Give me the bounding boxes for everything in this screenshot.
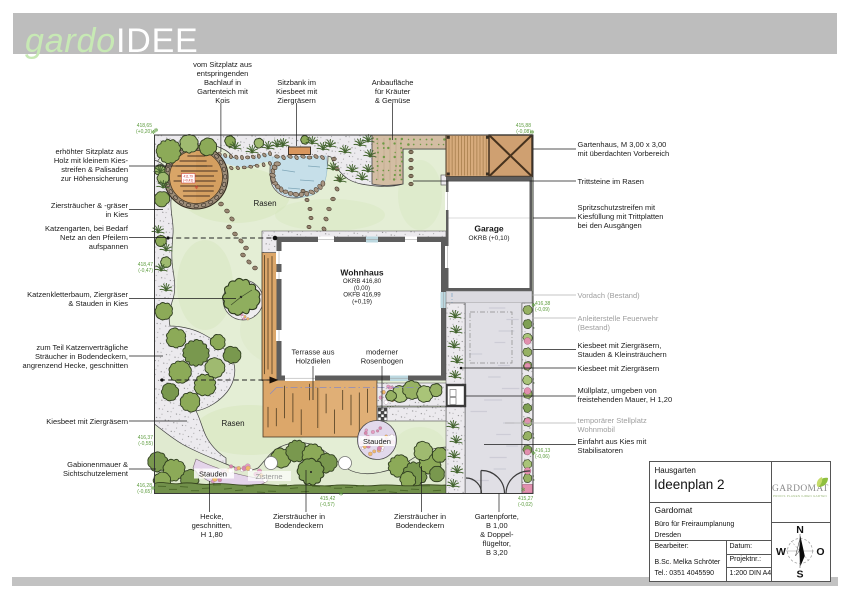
svg-text:(+0,43): (+0,43) xyxy=(183,179,193,183)
svg-text:✻: ✻ xyxy=(531,450,536,457)
svg-text:Rasen: Rasen xyxy=(221,419,244,428)
svg-text:(+0,20): (+0,20) xyxy=(136,129,152,135)
svg-text:Stauden: Stauden xyxy=(363,437,391,446)
svg-text:Wohnhaus: Wohnhaus xyxy=(340,268,384,278)
svg-text:✻: ✻ xyxy=(531,302,536,309)
svg-text:OKRB (+0,10): OKRB (+0,10) xyxy=(468,235,509,242)
svg-text:✻: ✻ xyxy=(194,185,198,191)
svg-text:✻: ✻ xyxy=(530,129,535,136)
svg-text:✻: ✻ xyxy=(154,127,159,134)
svg-text:(+0,19): (+0,19) xyxy=(352,298,372,305)
svg-text:(-0,47): (-0,47) xyxy=(138,268,153,274)
svg-text:Zisterne: Zisterne xyxy=(255,472,282,481)
svg-text:Rosenbogen: Rosenbogen xyxy=(361,357,404,366)
svg-text:Rasen: Rasen xyxy=(253,199,276,208)
svg-text:✻: ✻ xyxy=(151,485,156,492)
svg-text:✻: ✻ xyxy=(339,491,344,498)
svg-text:(-0,57): (-0,57) xyxy=(320,502,335,508)
svg-text:(-0,55): (-0,55) xyxy=(138,441,153,447)
svg-text:moderner: moderner xyxy=(366,348,399,357)
svg-text:Holzdielen: Holzdielen xyxy=(295,357,330,366)
svg-text:(-0,09): (-0,09) xyxy=(535,307,550,313)
svg-text:(-0,02): (-0,02) xyxy=(518,502,533,508)
svg-text:Stauden: Stauden xyxy=(199,470,227,479)
svg-text:✻: ✻ xyxy=(521,487,526,494)
svg-text:(-0,06): (-0,06) xyxy=(535,454,550,460)
svg-text:Garage: Garage xyxy=(474,224,504,234)
svg-text:Terrasse aus: Terrasse aus xyxy=(292,348,335,357)
